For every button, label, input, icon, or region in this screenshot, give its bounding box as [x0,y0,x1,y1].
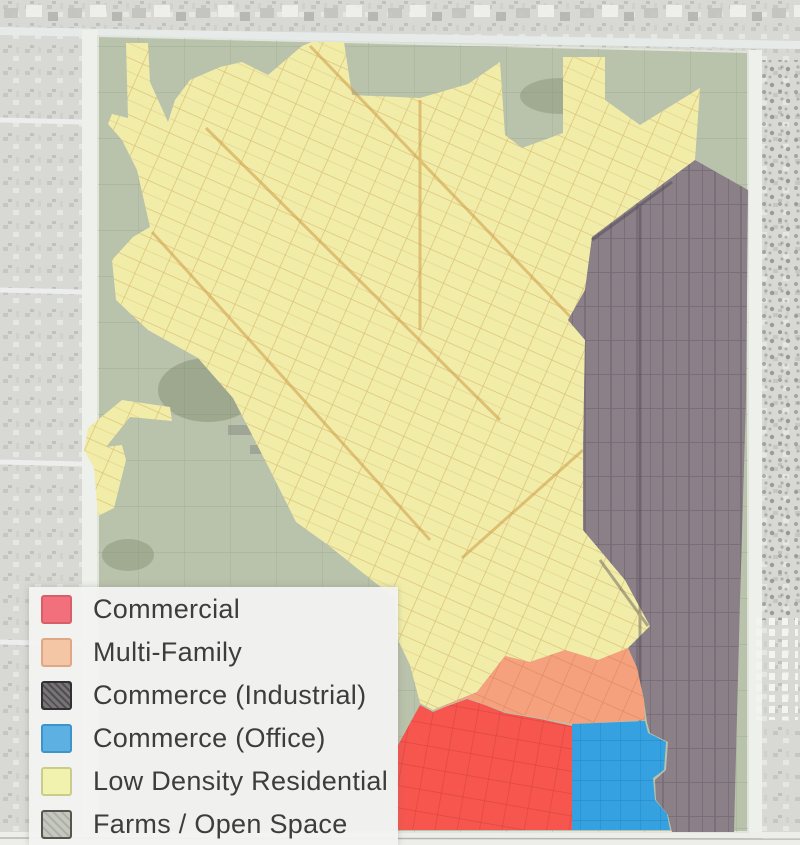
legend-swatch-farms-open-space [41,810,72,839]
right-tree-column [762,60,800,620]
zone-commerce-office [572,721,670,830]
legend-item-label: Farms / Open Space [93,809,348,840]
legend-item: Low Density Residential [29,760,398,803]
aerial-houses-top [0,2,800,30]
legend-item-label: Commercial [93,594,240,625]
legend-item: Farms / Open Space [29,803,398,845]
legend-swatch-commercial [41,595,72,624]
legend-item-label: Multi-Family [93,637,242,668]
legend-swatch-multi-family [41,638,72,667]
legend-swatch-commerce-industrial [41,681,72,710]
legend: Commercial Multi-Family Commerce (Indust… [29,587,398,845]
legend-swatch-commerce-office [41,724,72,753]
legend-item-label: Low Density Residential [93,766,388,797]
legend-item: Commercial [29,588,398,631]
legend-item-label: Commerce (Industrial) [93,680,366,711]
legend-item: Commerce (Industrial) [29,674,398,717]
legend-swatch-low-density-residential [41,767,72,796]
legend-item: Commerce (Office) [29,717,398,760]
legend-item: Multi-Family [29,631,398,674]
zoning-map-page: Commercial Multi-Family Commerce (Indust… [0,0,800,845]
legend-item-label: Commerce (Office) [93,723,326,754]
